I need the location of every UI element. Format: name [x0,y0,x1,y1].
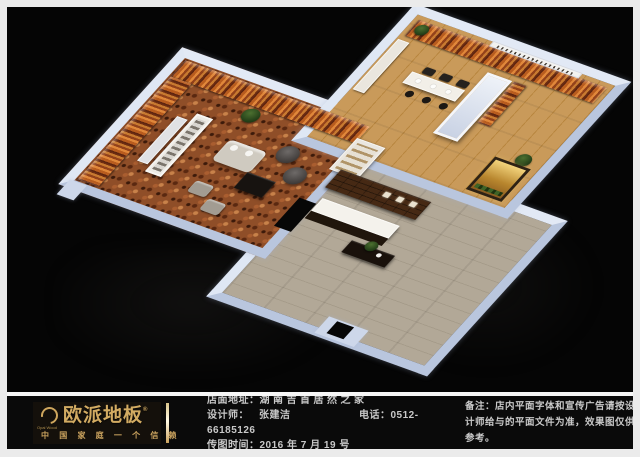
upload-date-row: 传图时间：2016 年 7 月 19 号 [207,438,455,453]
brand-slogan: 中 国 家 庭 一 个 信 赖 [41,430,181,441]
designer-value: 张建洁 [259,408,359,423]
store-info-block: 店面地址：湖南吉首居然之家 设计师：张建洁电话：0512-66185126 传图… [207,393,455,453]
render-canvas [7,7,633,394]
address-value: 湖南吉首居然之家 [260,395,368,406]
designer-label: 设计师： [207,408,259,423]
brand-logo-panel: 欧派地板® Opai Wood 中 国 家 庭 一 个 信 赖 [33,402,161,444]
footer-divider-line [0,392,640,396]
info-footer: 欧派地板® Opai Wood 中 国 家 庭 一 个 信 赖 店面地址：湖南吉… [7,396,633,449]
brand-name: 欧派地板® [63,406,148,426]
registered-mark: ® [143,407,148,413]
designer-row: 设计师：张建洁电话：0512-66185126 [207,408,455,438]
date-label: 传图时间： [207,438,260,453]
phone-label: 电话： [359,410,391,421]
date-value: 2016 年 7 月 19 号 [260,440,350,451]
remark-block: 备注：店内平面字体和宣传广告请按设计师给与的平面文件为准，效果图仅供参考。 [465,399,637,447]
opai-ring-icon [38,404,62,428]
remark-label: 备注： [465,401,495,412]
